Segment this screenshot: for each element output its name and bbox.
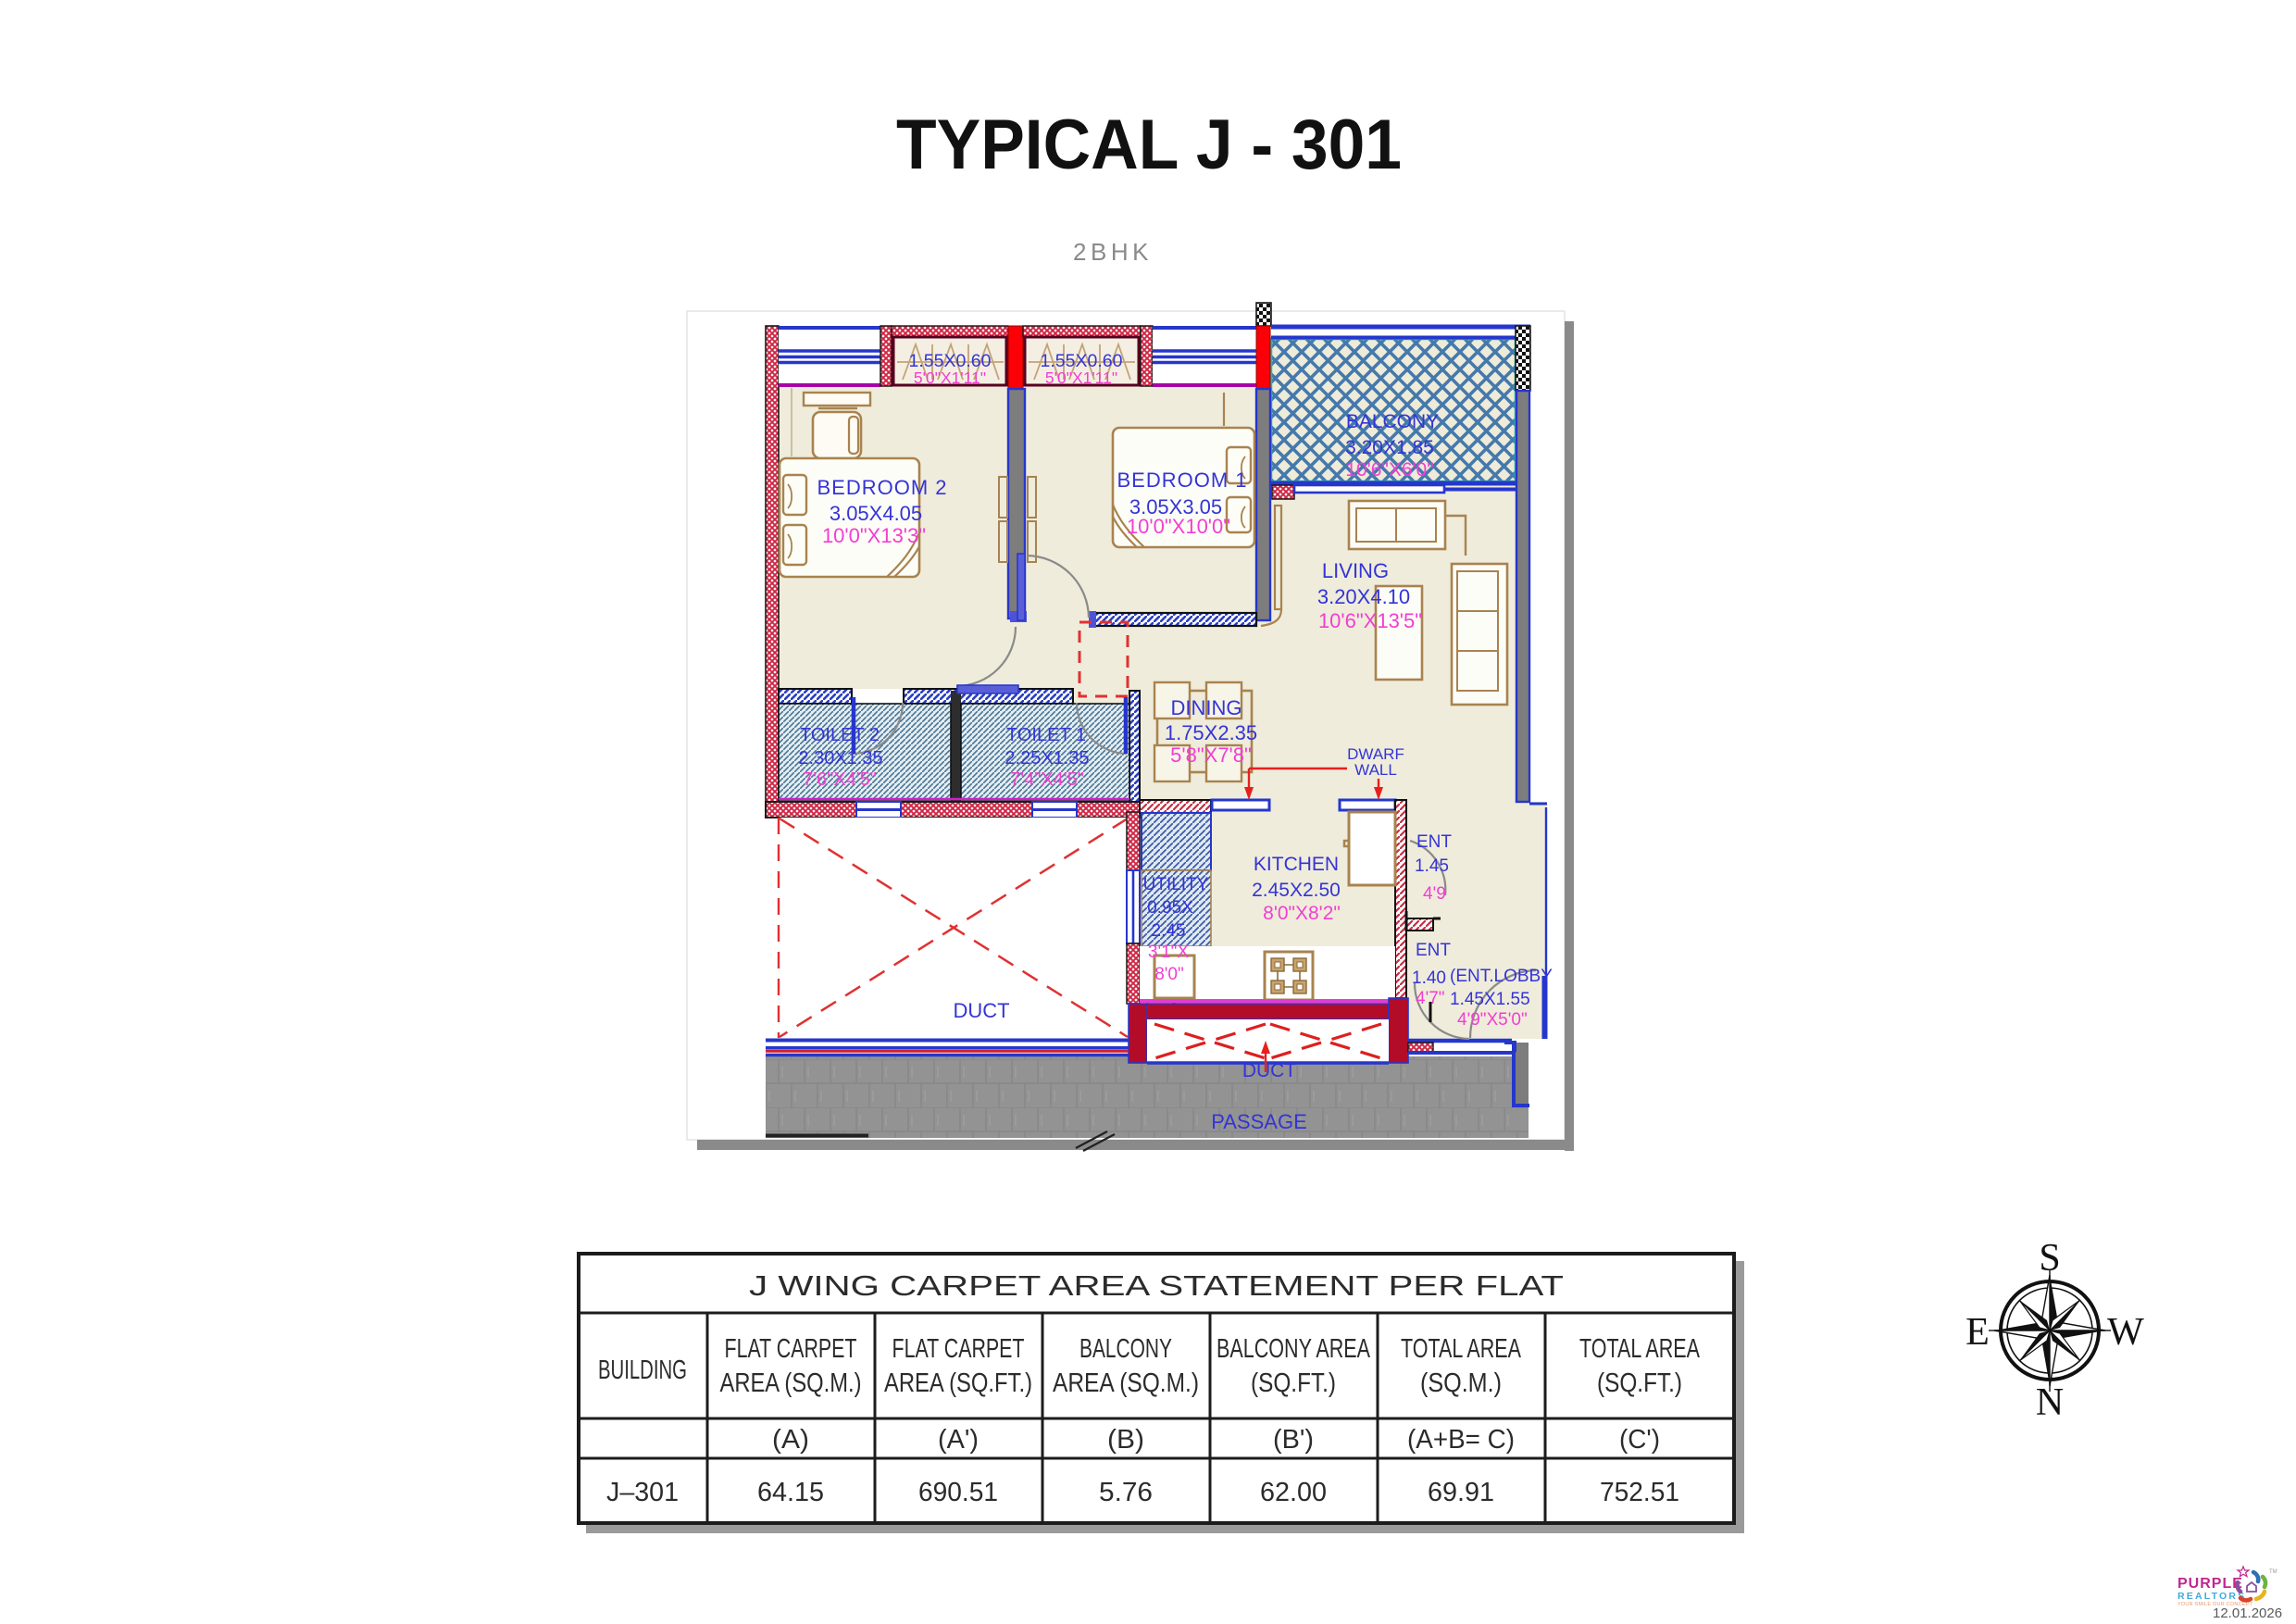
- svg-text:TOTAL AREA: TOTAL AREA: [1401, 1334, 1521, 1364]
- svg-text:8'0": 8'0": [1154, 965, 1184, 984]
- svg-text:PURPLE: PURPLE: [2177, 1576, 2243, 1592]
- svg-text:5'8"X7'8": 5'8"X7'8": [1170, 743, 1252, 767]
- svg-text:AREA (SQ.M.): AREA (SQ.M.): [1053, 1368, 1199, 1398]
- svg-text:J WING CARPET AREA STATEMENT P: J WING CARPET AREA STATEMENT PER FLAT: [749, 1269, 1564, 1302]
- svg-text:BALCONY: BALCONY: [1346, 411, 1439, 432]
- svg-text:BALCONY AREA: BALCONY AREA: [1217, 1334, 1370, 1364]
- svg-text:BALCONY: BALCONY: [1079, 1334, 1172, 1364]
- svg-text:0.95X: 0.95X: [1147, 898, 1193, 918]
- svg-text:TM: TM: [2269, 1569, 2277, 1575]
- svg-text:1.75X2.35: 1.75X2.35: [1165, 721, 1257, 744]
- svg-text:3.20X1.85: 3.20X1.85: [1345, 437, 1434, 458]
- svg-text:UTILITY: UTILITY: [1143, 875, 1209, 894]
- svg-text:690.51: 690.51: [918, 1478, 998, 1507]
- svg-text:4'7": 4'7": [1416, 989, 1445, 1008]
- svg-text:ENT: ENT: [1416, 832, 1452, 852]
- svg-text:DUCT: DUCT: [953, 999, 1009, 1022]
- svg-text:5'0"X1'11": 5'0"X1'11": [1045, 369, 1117, 387]
- svg-text:2.25X1.35: 2.25X1.35: [1004, 748, 1089, 768]
- svg-text:BUILDING: BUILDING: [598, 1355, 687, 1385]
- svg-text:FLAT CARPET: FLAT CARPET: [892, 1334, 1025, 1364]
- svg-text:(SQ.M.): (SQ.M.): [1420, 1368, 1502, 1398]
- svg-text:(SQ.FT.): (SQ.FT.): [1251, 1368, 1336, 1398]
- svg-text:ENT: ENT: [1416, 941, 1451, 960]
- svg-text:(ENT.LOBBY: (ENT.LOBBY: [1450, 967, 1553, 986]
- svg-text:62.00: 62.00: [1260, 1478, 1327, 1507]
- svg-text:(C'): (C'): [1619, 1425, 1660, 1455]
- svg-text:BEDROOM 2: BEDROOM 2: [817, 476, 947, 499]
- svg-text:DUCT: DUCT: [1242, 1060, 1296, 1081]
- svg-text:3'1"X: 3'1"X: [1148, 943, 1190, 962]
- svg-text:AREA (SQ.FT.): AREA (SQ.FT.): [884, 1368, 1032, 1398]
- svg-text:REALTORS: REALTORS: [2177, 1591, 2246, 1602]
- svg-text:10'6"X6'0": 10'6"X6'0": [1345, 459, 1433, 481]
- svg-text:10'6"X13'5": 10'6"X13'5": [1318, 609, 1422, 632]
- svg-text:(A'): (A'): [938, 1425, 979, 1455]
- svg-text:PASSAGE: PASSAGE: [1211, 1110, 1307, 1133]
- svg-text:FLAT CARPET: FLAT CARPET: [725, 1334, 857, 1364]
- svg-text:2.45: 2.45: [1152, 921, 1186, 941]
- svg-text:1.40: 1.40: [1412, 968, 1446, 988]
- svg-text:TYPICAL J - 301: TYPICAL J - 301: [896, 106, 1402, 184]
- svg-text:(B'): (B'): [1273, 1425, 1314, 1455]
- svg-text:KITCHEN: KITCHEN: [1254, 854, 1339, 875]
- svg-text:AREA (SQ.M.): AREA (SQ.M.): [720, 1368, 862, 1398]
- svg-text:10'0"X10'0": 10'0"X10'0": [1127, 515, 1230, 538]
- svg-text:S: S: [2039, 1237, 2060, 1280]
- svg-text:7'4"X4'5": 7'4"X4'5": [1010, 769, 1084, 790]
- svg-text:5'0"X1'11": 5'0"X1'11": [914, 369, 986, 387]
- svg-text:(B): (B): [1107, 1425, 1144, 1455]
- svg-text:W: W: [2107, 1311, 2144, 1354]
- svg-text:3.05X4.05: 3.05X4.05: [830, 502, 922, 525]
- svg-text:8'0"X8'2": 8'0"X8'2": [1263, 903, 1341, 924]
- svg-text:WALL: WALL: [1354, 761, 1397, 779]
- svg-text:LIVING: LIVING: [1322, 559, 1389, 582]
- svg-text:2.30X1.35: 2.30X1.35: [798, 748, 882, 768]
- svg-text:4'9"X5'0": 4'9"X5'0": [1457, 1010, 1528, 1030]
- svg-text:TOILET 1: TOILET 1: [1006, 725, 1086, 745]
- svg-text:1.45: 1.45: [1415, 856, 1449, 876]
- svg-text:DINING: DINING: [1171, 696, 1242, 719]
- svg-text:TOILET 2: TOILET 2: [800, 725, 880, 745]
- svg-text:BEDROOM 1: BEDROOM 1: [1117, 468, 1247, 492]
- svg-text:E: E: [1965, 1311, 1990, 1354]
- svg-text:10'0"X13'3": 10'0"X13'3": [822, 524, 926, 547]
- svg-text:7'6"X4'5": 7'6"X4'5": [803, 769, 877, 790]
- svg-text:5.76: 5.76: [1099, 1478, 1153, 1507]
- svg-text:2.45X2.50: 2.45X2.50: [1252, 880, 1341, 901]
- svg-text:J–301: J–301: [606, 1478, 679, 1507]
- svg-text:(A): (A): [772, 1425, 809, 1455]
- svg-text:64.15: 64.15: [757, 1478, 824, 1507]
- svg-text:752.51: 752.51: [1600, 1478, 1679, 1507]
- svg-text:4'9: 4'9: [1423, 884, 1446, 904]
- svg-text:N: N: [2036, 1381, 2064, 1424]
- svg-text:2BHK: 2BHK: [1073, 238, 1153, 266]
- svg-text:TOTAL AREA: TOTAL AREA: [1579, 1334, 1700, 1364]
- svg-text:69.91: 69.91: [1428, 1478, 1494, 1507]
- svg-text:(A+B= C): (A+B= C): [1407, 1425, 1515, 1455]
- svg-text:12.01.2026: 12.01.2026: [2213, 1605, 2282, 1621]
- svg-text:(SQ.FT.): (SQ.FT.): [1597, 1368, 1682, 1398]
- svg-text:1.45X1.55: 1.45X1.55: [1450, 990, 1530, 1009]
- svg-text:3.20X4.10: 3.20X4.10: [1317, 585, 1410, 608]
